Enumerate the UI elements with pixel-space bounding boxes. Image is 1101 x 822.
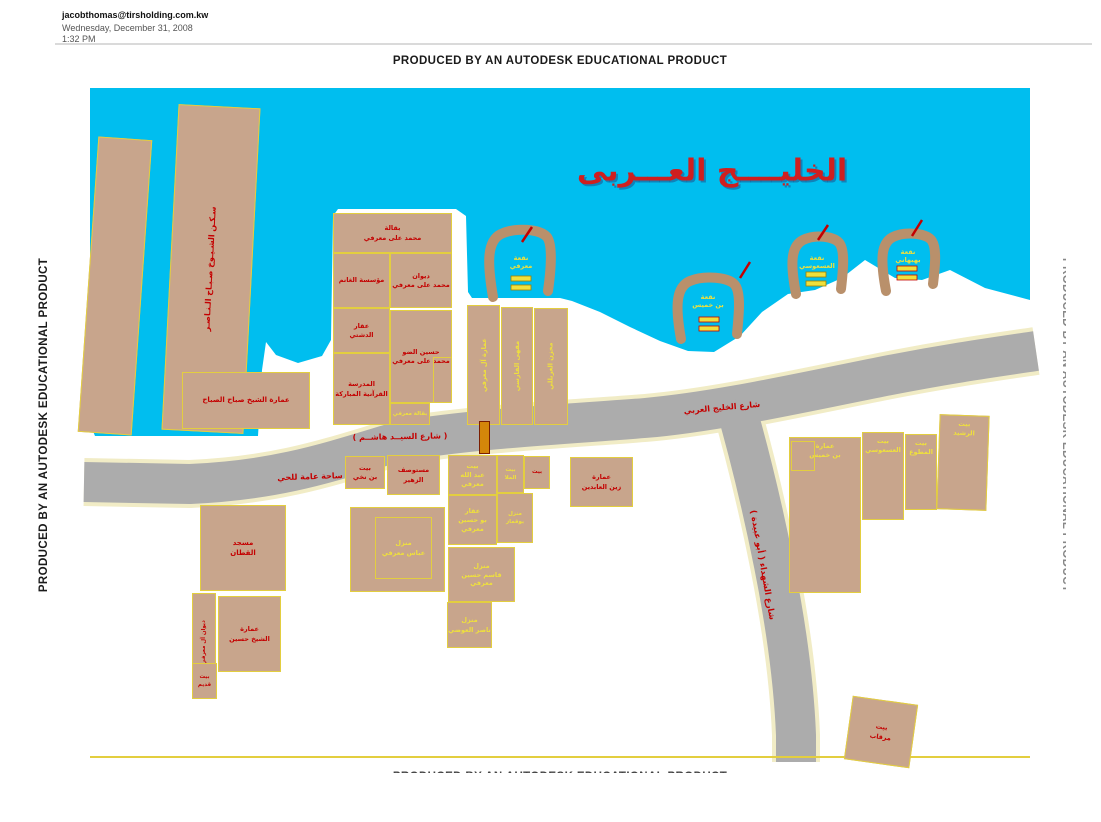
parcel-bu-hussain-property: عقاربو حسين معرفي	[448, 495, 497, 545]
sea-name-label: الخليــــج العـــربى	[577, 154, 847, 189]
parcel-bu-hussain-property-label: عقاربو حسين معرفي	[449, 496, 496, 544]
parcel-sheikh-housing-strip-text: سـكـن الشـيـوخ صـبـاح الـنـاصـر	[203, 206, 220, 331]
parcel-buqammaz-house-label: منزلبوقماز	[498, 494, 532, 542]
parcel-asousi-house-text-0: بيت	[877, 437, 889, 445]
parcel-qasim-hussain-house: منزلقاسم حسين معرفي	[448, 547, 515, 602]
parcel-small-grocery-text-0: بقالة معرفي	[393, 411, 428, 418]
parcel-rashed-house-label: بيتالرشيد	[937, 415, 988, 510]
parcel-quran-school-text-0: المدرسة	[348, 380, 375, 388]
parcel-diwan-marafi: ديوانمحمد على معرفي	[390, 253, 452, 308]
parcel-nasser-awadhi-house-label: منزلناصر العوضي	[448, 603, 491, 647]
parcel-alghanim-est-text-0: مؤسسة الغانم	[339, 276, 385, 284]
parcel-mutawa-house: بيتالمطوع	[905, 434, 937, 510]
parcel-zainal-abdeen-building: عمارةزين العابدين	[570, 457, 633, 507]
parcel-quran-school-label: المدرسةالقرآنية المباركة	[334, 354, 389, 424]
parcel-gharabally-store-strip-text: مخزن الغربللي	[547, 343, 555, 390]
parcel-asousi-house-text-1: العسعوسي	[865, 446, 901, 454]
parcel-grocery-marafi-label: بقالةمحمد على معرفي	[334, 214, 451, 252]
parcel-zuhair-clinic-text-1: الزهير	[404, 476, 424, 484]
parcel-asousi-house-label: بيتالعسعوسي	[863, 433, 903, 519]
parcel-old-house-label: بيتقديم	[193, 664, 216, 698]
plotted-drawing-page: jacobthomas@tirsholding.com.kw Wednesday…	[0, 0, 1101, 822]
parcel-rashed-house-text-1: الرشيد	[953, 429, 975, 438]
parcel-farsi-cafe-strip: مقهى الفارسي	[501, 307, 533, 425]
parcel-qasim-hussain-house-text-0: منزل	[473, 562, 489, 570]
parcel-mulla-house-text-0: بيت	[505, 467, 515, 474]
road-gate-marker	[479, 421, 490, 454]
parcel-dashti-property-text-1: الدشتي	[349, 331, 373, 339]
parcel-small-grocery: بقالة معرفي	[390, 403, 430, 425]
parcel-nasser-awadhi-house-text-1: ناصر العوضي	[448, 626, 491, 634]
parcel-bin-nakhi-house-text-0: بيت	[359, 464, 371, 472]
parcel-gharabally-store-strip-label: مخزن الغربللي	[535, 309, 567, 424]
parcel-small-house-label: بيت	[525, 457, 549, 488]
parcel-qattan-mosque-label: مسجدالقطان	[201, 506, 285, 590]
pier-asousi-label-line-1: العسعوسي	[799, 263, 835, 271]
parcel-bin-nakhi-house: بيتبن نخي	[345, 456, 385, 489]
pier-asousi-label: نقعةالعسعوسي	[799, 255, 835, 271]
parcel-buqammaz-house-text-1: بوقماز	[506, 519, 524, 526]
parcel-zainal-abdeen-building-label: عمارةزين العابدين	[571, 458, 632, 506]
parcel-abbas-marafi-house: منزلعباس معرفي	[375, 517, 432, 579]
parcel-zuhair-clinic: مستوصفالزهير	[387, 455, 440, 495]
parcel-old-house-text-1: قديم	[198, 682, 211, 689]
pier-marafi-label: نقعةمعرفي	[510, 255, 533, 271]
parcel-sheikh-hussain-building-label: عمارةالشيخ حسين	[219, 597, 280, 671]
parcel-buqammaz-house: منزلبوقماز	[497, 493, 533, 543]
parcel-dashti-property-label: عقارالدشتي	[334, 309, 389, 352]
parcel-alghanim-est: مؤسسة الغانم	[333, 253, 390, 308]
parcel-rashed-house: بيتالرشيد	[936, 414, 989, 511]
parcel-marafi-building-strip-label: عمارة آل معرفي	[468, 306, 499, 424]
parcel-grocery-marafi-text-0: بقالة	[385, 224, 401, 232]
parcel-mirqab-plot-text-0: بيت	[875, 723, 888, 733]
parcel-asousi-house: بيتالعسعوسي	[862, 432, 904, 520]
pier-marafi-label-line-1: معرفي	[510, 263, 533, 271]
parcel-mirqab-plot-text-1: مرقاب	[869, 731, 891, 742]
parcel-mirqab-plot: بيتمرقاب	[844, 696, 918, 769]
parcel-inner-annex	[433, 357, 452, 403]
parcel-alghanim-est-label: مؤسسة الغانم	[334, 254, 389, 307]
parcel-farsi-cafe-strip-text: مقهى الفارسي	[513, 341, 521, 391]
parcel-diagonal-strip-west	[78, 136, 153, 435]
parcel-abdullah-marafi-house-text-1: عبد الله معرفي	[449, 471, 496, 487]
parcel-bin-nakhi-house-text-1: بن نخي	[353, 473, 377, 481]
parcel-diwan-marafi-text-1: محمد على معرفي	[392, 281, 450, 289]
parcel-grocery-marafi-text-1: محمد على معرفي	[364, 234, 422, 242]
parcel-grocery-marafi: بقالةمحمد على معرفي	[333, 213, 452, 253]
parcel-sheikh-sabah-building-text-0: عمارة الشيخ صباح الصباح	[202, 396, 289, 405]
parcel-farsi-cafe-strip-label: مقهى الفارسي	[502, 308, 532, 424]
pier-bin-khamis-label: نقعةبن خميس	[692, 294, 723, 310]
parcel-sheikh-sabah-building-label: عمارة الشيخ صباح الصباح	[183, 373, 309, 428]
parcel-diwan-marafi-label: ديوانمحمد على معرفي	[391, 254, 451, 307]
parcel-gharabally-store-strip: مخزن الغربللي	[534, 308, 568, 425]
parcel-qattan-mosque-text-1: القطان	[230, 549, 256, 558]
parcel-sheikh-hussain-building-text-0: عمارة	[240, 625, 259, 633]
parcel-small-house: بيت	[524, 456, 550, 489]
parcel-mulla-house: بيتالملا	[497, 455, 524, 493]
parcel-abbas-marafi-house-label: منزلعباس معرفي	[376, 518, 431, 578]
parcel-qasim-hussain-house-label: منزلقاسم حسين معرفي	[449, 548, 514, 601]
parcel-qattan-mosque: مسجدالقطان	[200, 505, 286, 591]
parcel-abdullah-marafi-house: بيتعبد الله معرفي	[448, 455, 497, 495]
parcel-dashti-property: عقارالدشتي	[333, 308, 390, 353]
parcel-sheikh-hussain-building: عمارةالشيخ حسين	[218, 596, 281, 672]
road-label-1: شارع الخليج العربي	[683, 400, 760, 416]
parcel-small-house-text-0: بيت	[532, 469, 542, 476]
road-label-3: شارع الشهداء ( أبو عبيدة )	[747, 509, 776, 621]
parcel-nasser-awadhi-house: منزلناصر العوضي	[447, 602, 492, 648]
parcel-zuhair-clinic-label: مستوصفالزهير	[388, 456, 439, 494]
parcel-qattan-mosque-text-0: مسجد	[233, 539, 254, 548]
parcel-abbas-marafi-house-text-1: عباس معرفي	[382, 549, 425, 557]
parcel-bin-nakhi-house-label: بيتبن نخي	[346, 457, 384, 488]
parcel-quran-school-text-1: القرآنية المباركة	[335, 390, 388, 398]
parcel-mutawa-house-label: بيتالمطوع	[906, 435, 936, 509]
parcel-abdullah-marafi-house-text-0: بيت	[467, 462, 479, 470]
parcel-zainal-abdeen-building-text-0: عمارة	[592, 473, 611, 481]
pier-behbehani-label: نقعةبهبهاني	[895, 249, 920, 265]
parcel-bu-hussain-property-text-1: بو حسين معرفي	[449, 516, 496, 532]
parcel-sheikh-hussain-building-text-1: الشيخ حسين	[229, 635, 270, 643]
parcel-abbas-marafi-house-text-0: منزل	[395, 539, 411, 547]
parcel-dashti-property-text-0: عقار	[354, 322, 369, 330]
parcel-quran-school: المدرسةالقرآنية المباركة	[333, 353, 390, 425]
parcel-mulla-house-label: بيتالملا	[498, 456, 523, 492]
parcel-hussain-marafi-text-0: حسين الضو	[402, 348, 439, 356]
parcel-mutawa-house-text-0: بيت	[915, 439, 927, 447]
parcel-rashed-house-text-0: بيت	[958, 420, 970, 429]
parcel-buqammaz-house-text-0: منزل	[508, 511, 522, 518]
parcel-old-house-text-0: بيت	[199, 674, 209, 681]
parcel-mirqab-plot-label: بيتمرقاب	[845, 697, 917, 767]
parcel-qasim-hussain-house-text-1: قاسم حسين معرفي	[449, 571, 514, 587]
map-overlay: الخليــــج العـــربى سـكـن الشـيـوخ صـبـ…	[0, 0, 1101, 822]
parcel-zainal-abdeen-building-text-1: زين العابدين	[582, 483, 622, 491]
parcel-abdullah-marafi-house-label: بيتعبد الله معرفي	[449, 456, 496, 494]
parcel-nasser-awadhi-house-text-0: منزل	[461, 616, 477, 624]
road-label-2: ساحة عامة للحي	[277, 471, 343, 483]
parcel-marafi-building-strip-text: عمارة آل معرفي	[479, 338, 487, 392]
parcel-marafi-building-strip: عمارة آل معرفي	[467, 305, 500, 425]
parcel-zuhair-clinic-text-0: مستوصف	[398, 466, 429, 474]
parcel-mulla-house-text-1: الملا	[505, 475, 517, 482]
parcel-mutawa-house-text-1: المطوع	[909, 448, 933, 456]
parcel-old-house: بيتقديم	[192, 663, 217, 699]
road-label-0: ( شارع السيــد هاشــم )	[353, 431, 448, 442]
parcel-bin-khamis-annex	[791, 441, 815, 471]
pier-behbehani-label-line-1: بهبهاني	[895, 257, 920, 265]
parcel-diwan-marafi-text-0: ديوان	[412, 272, 430, 280]
parcel-bu-hussain-property-text-0: عقار	[465, 507, 480, 515]
parcel-bin-khamis-building-text-0: عمارة	[816, 442, 835, 450]
parcel-marafi-diwan-strip-text: ديوان آل معرفي	[201, 620, 208, 665]
pier-bin-khamis-label-line-1: بن خميس	[692, 302, 723, 310]
parcel-small-grocery-label: بقالة معرفي	[391, 404, 429, 424]
parcel-sheikh-sabah-building: عمارة الشيخ صباح الصباح	[182, 372, 310, 429]
